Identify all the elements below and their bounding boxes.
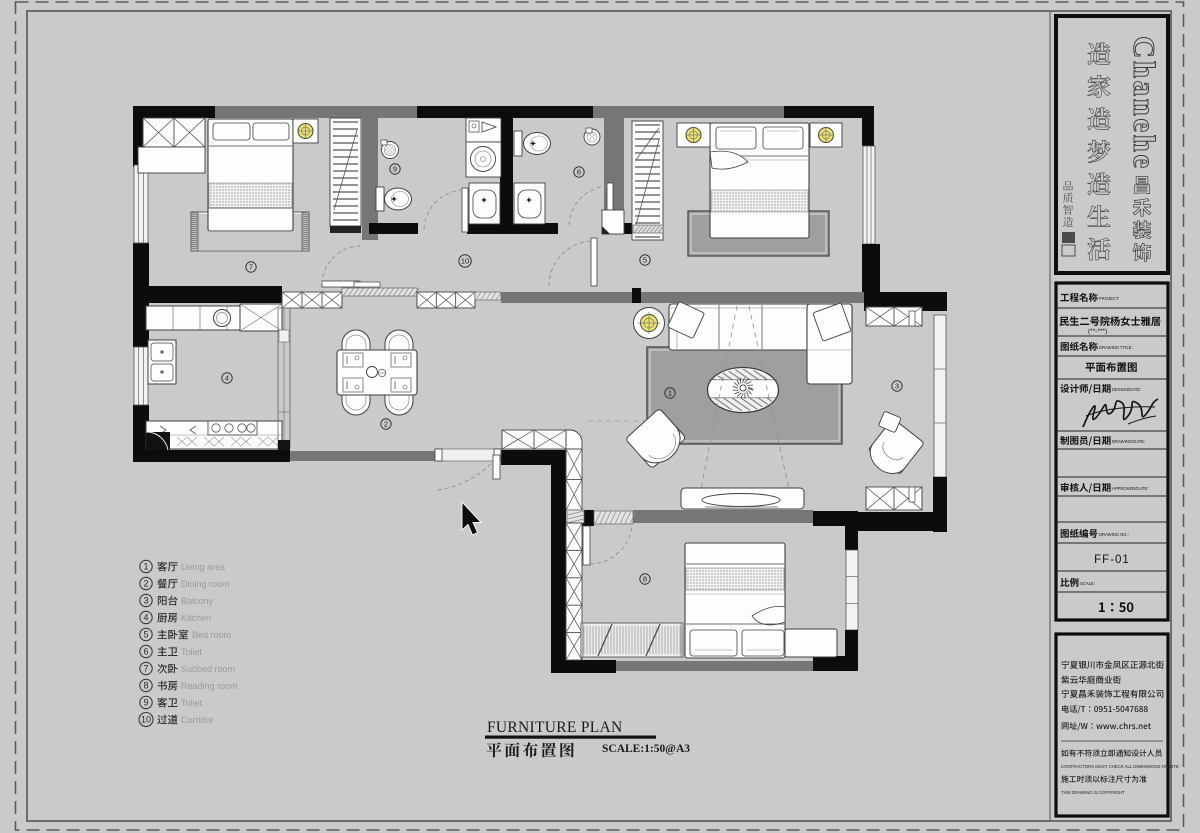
svg-text:THIS DRAWING IS COPYRIGHT: THIS DRAWING IS COPYRIGHT [1061, 790, 1125, 795]
svg-text:SCALE:1:50@A3: SCALE:1:50@A3 [602, 743, 690, 755]
svg-text:SCALE:: SCALE: [1080, 581, 1095, 586]
svg-text:3: 3 [143, 596, 148, 606]
svg-text:Toliet: Toliet [181, 647, 203, 657]
svg-text:Balcony: Balcony [181, 596, 214, 606]
svg-text:3: 3 [895, 382, 899, 391]
svg-text:7: 7 [143, 664, 148, 674]
svg-text:4: 4 [225, 374, 229, 383]
svg-text:DESIGN/DATE:: DESIGN/DATE: [1112, 387, 1141, 392]
svg-text:FURNITURE PLAN: FURNITURE PLAN [487, 719, 623, 736]
svg-text:FF-01: FF-01 [1094, 554, 1130, 566]
svg-text:Kitchen: Kitchen [181, 613, 211, 623]
svg-text:5: 5 [143, 630, 148, 640]
svg-text:5: 5 [643, 256, 647, 265]
svg-text:10: 10 [461, 257, 469, 266]
svg-text:Bed room: Bed room [192, 630, 231, 640]
svg-text:Toliet: Toliet [181, 698, 203, 708]
svg-text:9: 9 [143, 698, 148, 708]
svg-text:DRAWING/DATE:: DRAWING/DATE: [1112, 439, 1145, 444]
svg-text:8: 8 [643, 575, 647, 584]
svg-text:9: 9 [393, 165, 397, 174]
svg-text:2: 2 [143, 579, 148, 589]
svg-text:7: 7 [249, 263, 253, 272]
svg-text:Living area: Living area [181, 562, 225, 572]
svg-text:1: 1 [143, 562, 148, 572]
svg-text:(**-***): (**-***) [1088, 328, 1107, 335]
svg-text:Corridor: Corridor [181, 715, 214, 725]
svg-text:6: 6 [577, 168, 581, 177]
svg-text:10: 10 [141, 715, 151, 725]
svg-text:PROJECT:: PROJECT: [1099, 296, 1119, 301]
svg-text:Reading room: Reading room [181, 681, 238, 691]
svg-text:6: 6 [143, 647, 148, 657]
svg-text:DRAWING TITLE:: DRAWING TITLE: [1099, 345, 1133, 350]
svg-text:2: 2 [384, 420, 388, 429]
svg-text:Chanehe: Chanehe [1127, 36, 1162, 171]
svg-text:CONTRACTORS MUST CHECK ALL DIM: CONTRACTORS MUST CHECK ALL DIMENSIONS ON… [1061, 764, 1179, 769]
svg-text:DRAWING NO.:: DRAWING NO.: [1099, 532, 1129, 537]
svg-text:8: 8 [143, 681, 148, 691]
svg-text:4: 4 [143, 613, 148, 623]
svg-text:Subbed room: Subbed room [181, 664, 235, 674]
svg-text:1: 1 [668, 389, 672, 398]
svg-text:Dining room: Dining room [181, 579, 230, 589]
svg-text:APPROVED/DATE:: APPROVED/DATE: [1112, 486, 1148, 491]
